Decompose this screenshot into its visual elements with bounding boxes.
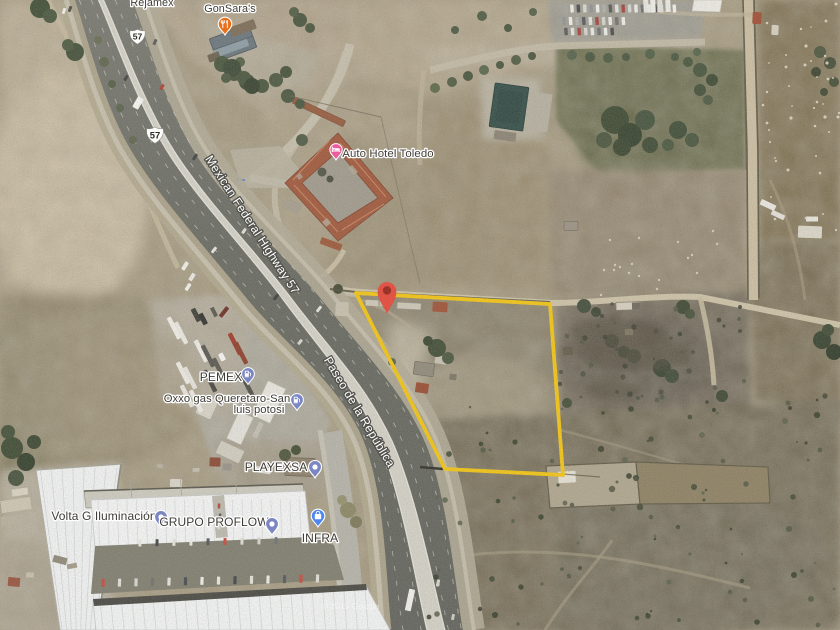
svg-text:Rejamex: Rejamex xyxy=(130,0,174,9)
svg-text:PLAYEXSA: PLAYEXSA xyxy=(245,460,308,474)
svg-text:luis potosi: luis potosi xyxy=(234,404,285,416)
svg-text:Auto Hotel Toledo: Auto Hotel Toledo xyxy=(342,148,433,160)
svg-text:57: 57 xyxy=(150,130,161,141)
svg-text:57: 57 xyxy=(133,32,143,42)
svg-text:Volta G Iluminación: Volta G Iluminación xyxy=(51,509,156,523)
svg-text:GonSara's: GonSara's xyxy=(204,3,256,15)
svg-text:INFRA: INFRA xyxy=(302,531,339,545)
svg-text:PEMEX: PEMEX xyxy=(200,370,243,384)
svg-text:GRUPO PROFLOW: GRUPO PROFLOW xyxy=(159,515,269,529)
svg-text:© 2019 Google: © 2019 Google xyxy=(322,601,380,611)
